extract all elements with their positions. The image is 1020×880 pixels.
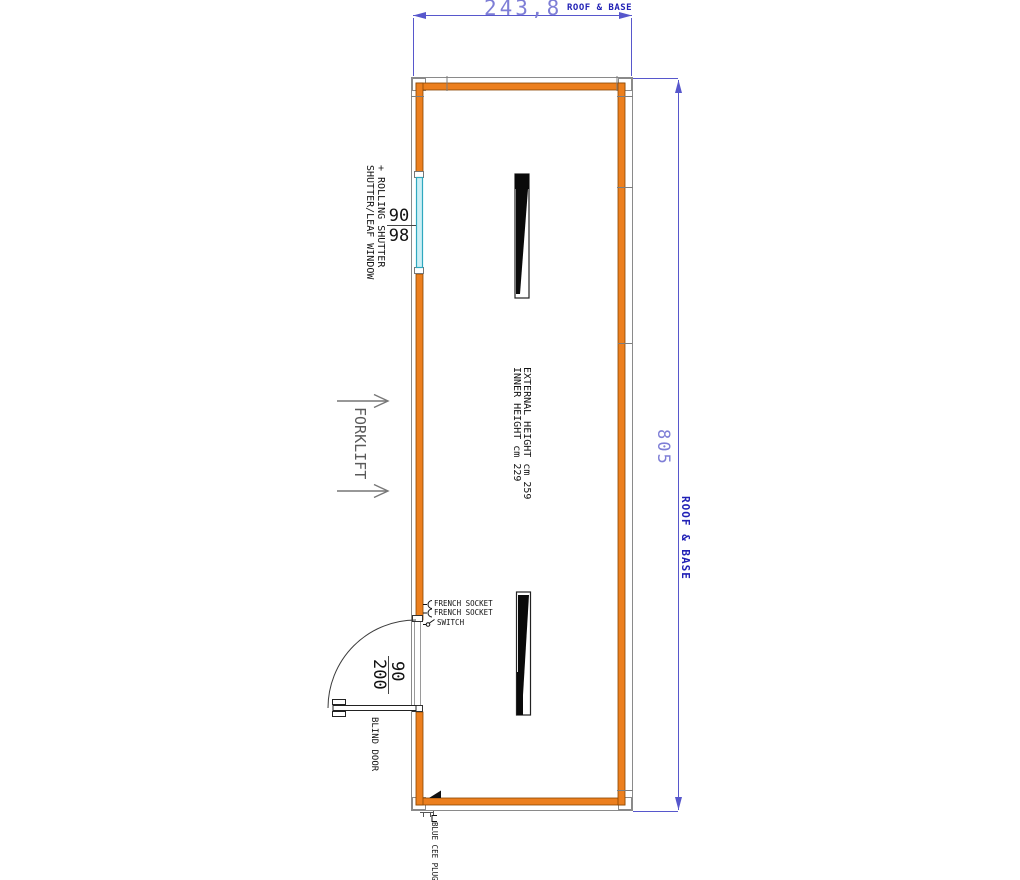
door-handle-icon: [333, 700, 346, 705]
dimension-arrow-icon: [675, 80, 682, 93]
height-note: INNER HEIGHT cm 229 EXTERNAL HEIGHT cm 2…: [511, 367, 531, 499]
top-dimension-suffix: ROOF & BASE: [567, 4, 632, 13]
french-socket-label-1: FRENCH SOCKET: [434, 600, 493, 608]
floor-plan-canvas: 243,8 ROOF & BASE 805 ROOF & BASE SHUTTE…: [0, 0, 1020, 880]
right-dimension-value: 805: [653, 429, 673, 466]
cee-plug-label: BLUE CEE PLUG: [430, 822, 439, 880]
top-dimension-value: 243,8: [484, 0, 562, 19]
dimension-arrow-icon: [619, 12, 632, 19]
dimension-top: [413, 12, 632, 76]
window-label-line1: SHUTTER/LEAF WINDOW: [364, 165, 375, 279]
door-height-dim: 200: [372, 659, 386, 690]
ceiling-lamp-icon: [515, 174, 529, 298]
right-dimension-suffix: ROOF & BASE: [679, 496, 692, 580]
window-label: SHUTTER/LEAF WINDOW + ROLLING SHUTTER: [364, 165, 386, 279]
door-width-dim: 90: [390, 661, 404, 681]
window-height-dim: 98: [388, 228, 410, 245]
plan-geometry: [0, 0, 1020, 880]
blind-door-label: BLIND DOOR: [369, 717, 379, 771]
external-height-note: EXTERNAL HEIGHT cm 259: [521, 367, 531, 499]
door-leaf: [333, 706, 416, 711]
door-handle-icon: [333, 712, 346, 717]
dimension-arrow-icon: [675, 797, 682, 810]
window-width-dim: 90: [388, 208, 410, 225]
dimension-arrow-icon: [413, 12, 426, 19]
french-socket-label-2: FRENCH SOCKET: [434, 609, 493, 617]
ceiling-lamp-icon: [517, 592, 531, 715]
inner-height-note: INNER HEIGHT cm 229: [511, 367, 521, 499]
window-label-line2: + ROLLING SHUTTER: [375, 165, 386, 279]
forklift-label: FORKLIFT: [351, 407, 369, 479]
switch-label: SWITCH: [437, 619, 464, 627]
